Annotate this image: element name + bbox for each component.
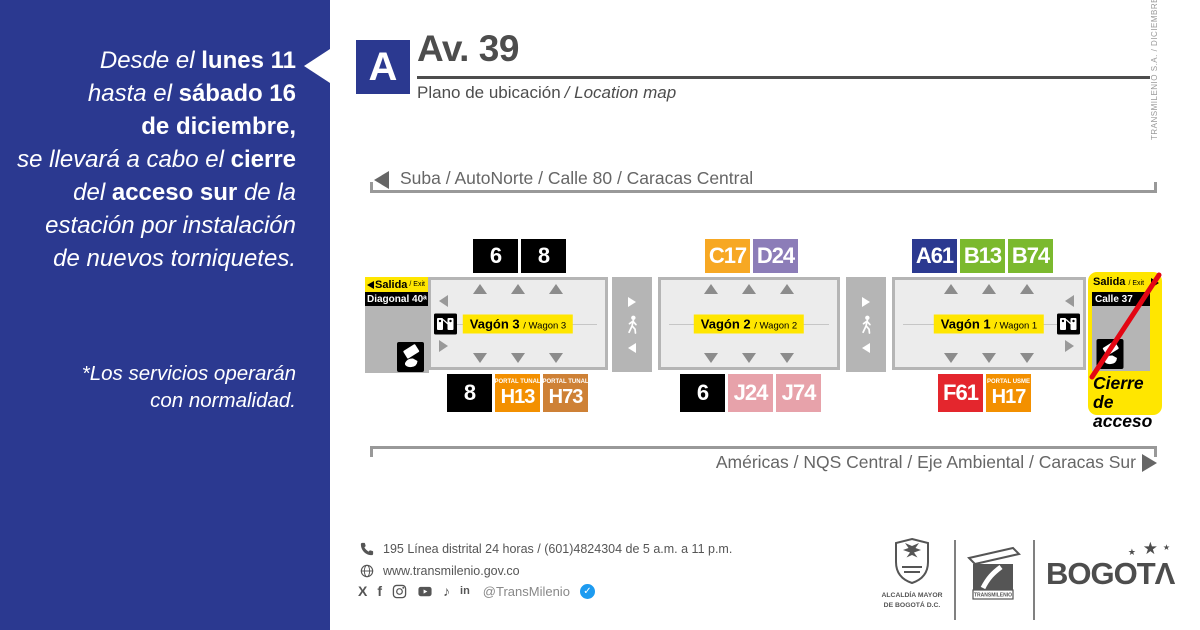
- turnstile-icon: [434, 313, 457, 334]
- sidebar-message-line: de diciembre,: [0, 110, 296, 143]
- x-icon: X: [358, 584, 367, 599]
- footer-phone-row: 195 Línea distrital 24 horas / (601)4824…: [360, 542, 732, 556]
- arrow-up-icon: [780, 284, 794, 294]
- arrow-down-icon: [511, 353, 525, 363]
- bogota-logo: ★ ★ ★ BOGOTΛ: [1046, 556, 1176, 592]
- badge-label: B74: [1012, 245, 1049, 267]
- flow-right-icon: [439, 340, 448, 352]
- footer-website: www.transmilenio.gov.co: [383, 564, 520, 578]
- page-title: Av. 39: [417, 28, 519, 70]
- poster-canvas: Desde el lunes 11hasta el sábado 16de di…: [0, 0, 1200, 630]
- exit-left-salida-bar: Salida / Exit: [365, 277, 429, 292]
- wagon-3: Vagón 3 / Wagon 3: [428, 277, 608, 370]
- transmilenio-logo: TRANSMILENIO: [963, 544, 1025, 611]
- badge-label: H13: [501, 387, 535, 407]
- wagon-name-en: / Wagon 2: [754, 320, 797, 331]
- boarding-arrows-bottom: [895, 353, 1083, 363]
- message-segment: cierre: [231, 146, 296, 173]
- subtitle-es: Plano de ubicación: [417, 83, 561, 102]
- facebook-icon: f: [377, 584, 382, 599]
- roadway-line-top: [370, 190, 1157, 193]
- sidebar-message: Desde el lunes 11hasta el sábado 16de di…: [0, 44, 296, 275]
- direction-top-label: Suba / AutoNorte / Calle 80 / Caracas Ce…: [400, 168, 753, 189]
- wagon-2-top-routes: C17D24: [705, 239, 798, 273]
- route-badge-8: 8: [447, 374, 492, 412]
- footer-website-row: www.transmilenio.gov.co: [360, 564, 520, 578]
- phone-icon: [360, 542, 374, 556]
- message-segment: sábado 16: [179, 80, 296, 107]
- header-underline: [417, 76, 1150, 79]
- badge-portal-tag: PORTAL TUNAL: [542, 379, 588, 385]
- linkedin-icon: in: [460, 584, 470, 599]
- badge-label: 6: [490, 245, 501, 267]
- badge-label: 8: [464, 382, 475, 404]
- wagon-3-label: Vagón 3 / Wagon 3: [463, 314, 573, 333]
- flow-left-icon: [1065, 295, 1074, 307]
- direction-bottom: Américas / NQS Central / Eje Ambiental /…: [370, 452, 1157, 473]
- arrow-down-icon: [1020, 353, 1034, 363]
- wagon-name-en: / Wagon 1: [994, 320, 1037, 331]
- sidebar-footnote: *Los servicios operaráncon normalidad.: [0, 360, 296, 414]
- route-badge-H73: PORTAL TUNALH73: [543, 374, 588, 412]
- wagon-name-en: / Wagon 3: [523, 320, 566, 331]
- route-badge-A61: A61: [912, 239, 957, 273]
- message-segment: acceso sur: [112, 179, 237, 206]
- route-badge-8: 8: [521, 239, 566, 273]
- logo-divider: [1033, 540, 1035, 620]
- route-badge-D24: D24: [753, 239, 798, 273]
- route-badge-B74: B74: [1008, 239, 1053, 273]
- arrow-down-icon: [944, 353, 958, 363]
- wagon-name: Vagón 1: [941, 316, 991, 331]
- station-letter-badge: A: [356, 40, 410, 94]
- arrow-up-icon: [1020, 284, 1034, 294]
- wagon-name: Vagón 3: [470, 316, 520, 331]
- closed-exit-area: Salida / Exit Calle 37 Cierre deacceso: [1088, 272, 1162, 415]
- alcaldia-logo: ALCALDÍA MAYOR DE BOGOTÁ D.C.: [874, 537, 950, 610]
- transmilenio-logo-text: TRANSMILENIO: [974, 593, 1012, 599]
- badge-label: C17: [709, 245, 746, 267]
- footnote-line: *Los servicios operarán: [0, 360, 296, 387]
- arrow-up-icon: [511, 284, 525, 294]
- message-segment: estación por instalación: [45, 212, 296, 239]
- badge-label: B13: [964, 245, 1001, 267]
- arrow-down-icon: [742, 353, 756, 363]
- badge-label: H17: [992, 387, 1026, 407]
- wagon-1-label: Vagón 1 / Wagon 1: [934, 314, 1044, 333]
- footer-social-row: X f ♪ in @TransMilenio ✓: [358, 584, 595, 599]
- wagon-1-top-routes: A61B13B74: [912, 239, 1053, 273]
- card-validator-icon: [397, 342, 424, 372]
- message-segment: de la: [237, 179, 296, 206]
- flow-left-icon: [439, 295, 448, 307]
- turnstile-icon: [1057, 313, 1080, 334]
- message-segment: de diciembre,: [141, 113, 296, 140]
- youtube-icon: [417, 584, 433, 599]
- route-badge-B13: B13: [960, 239, 1005, 273]
- direction-bottom-label: Américas / NQS Central / Eje Ambiental /…: [716, 452, 1136, 473]
- sidebar-message-line: estación por instalación: [0, 209, 296, 242]
- social-handle: @TransMilenio: [483, 584, 570, 599]
- bogota-wordmark: BOGOTΛ: [1046, 556, 1174, 591]
- route-badge-6: 6: [680, 374, 725, 412]
- transmilenio-logo-icon: TRANSMILENIO: [965, 544, 1023, 606]
- badge-label: A61: [916, 245, 953, 267]
- message-segment: lunes 11: [201, 47, 296, 74]
- exit-left-arrow-icon: [367, 281, 374, 289]
- roadway-line-bottom: [370, 446, 1157, 449]
- arrow-down-icon: [549, 353, 563, 363]
- arrow-up-icon: [549, 284, 563, 294]
- wagon-2-bottom-routes: 6J24J74: [680, 374, 821, 412]
- badge-label: J74: [782, 382, 816, 404]
- boarding-arrows-top: [431, 284, 605, 294]
- arrow-up-icon: [742, 284, 756, 294]
- star-icon: ★: [1143, 539, 1158, 559]
- alcaldia-crest-icon: [891, 537, 933, 585]
- badge-portal-tag: PORTAL USME: [987, 379, 1030, 385]
- sidebar-message-line: Desde el lunes 11: [0, 44, 296, 77]
- instagram-icon: [392, 584, 407, 599]
- arrow-up-icon: [944, 284, 958, 294]
- header-subtitle: Plano de ubicación/ Location map: [417, 83, 676, 103]
- exit-left-exit: / Exit: [409, 281, 425, 288]
- alcaldia-text-2: DE BOGOTÁ D.C.: [874, 602, 950, 610]
- wagon-name: Vagón 2: [701, 316, 751, 331]
- wagon-3-top-routes: 68: [473, 239, 566, 273]
- alcaldia-text-1: ALCALDÍA MAYOR: [874, 592, 950, 600]
- arrow-down-icon: [780, 353, 794, 363]
- walk-right-icon: [628, 297, 636, 307]
- wagon-1-bottom-routes: F61PORTAL USMEH17: [938, 374, 1031, 412]
- closure-cross-icon: [1088, 272, 1162, 415]
- sidebar-message-line: de nuevos torniquetes.: [0, 242, 296, 275]
- route-badge-J74: J74: [776, 374, 821, 412]
- boarding-arrows-top: [895, 284, 1083, 294]
- badge-label: 6: [697, 382, 708, 404]
- route-badge-C17: C17: [705, 239, 750, 273]
- route-badge-H13: PORTAL TUNALH13: [495, 374, 540, 412]
- arrow-up-icon: [704, 284, 718, 294]
- message-segment: Desde el: [100, 47, 201, 74]
- message-segment: del: [73, 179, 112, 206]
- arrow-up-icon: [473, 284, 487, 294]
- arrow-down-icon: [704, 353, 718, 363]
- sidebar-message-line: se llevará a cabo el cierre: [0, 143, 296, 176]
- message-segment: hasta el: [88, 80, 179, 107]
- pedestrian-icon: [858, 314, 875, 336]
- verified-badge-icon: ✓: [580, 584, 595, 599]
- arrow-down-icon: [982, 353, 996, 363]
- credit-vertical-text: TRANSMILENIO S.A. / DICIEMBRE - 2023: [1150, 25, 1159, 140]
- walk-left-icon: [628, 343, 636, 353]
- badge-label: 8: [538, 245, 549, 267]
- sidebar-message-line: hasta el sábado 16: [0, 77, 296, 110]
- direction-left-arrow-icon: [374, 171, 389, 189]
- passage-walkway: [846, 277, 886, 372]
- arrow-up-icon: [982, 284, 996, 294]
- bogota-accent: Λ: [1155, 556, 1175, 591]
- badge-label: H73: [549, 387, 583, 407]
- flow-right-icon: [1065, 340, 1074, 352]
- exit-left-area: Salida / Exit Diagonal 40ᵃ: [365, 277, 429, 373]
- footer-phone: 195 Línea distrital 24 horas / (601)4824…: [383, 542, 732, 556]
- badge-label: J24: [734, 382, 768, 404]
- exit-left-street: Diagonal 40ᵃ: [365, 292, 429, 306]
- passage-walkway: [612, 277, 652, 372]
- badge-label: D24: [757, 245, 794, 267]
- boarding-arrows-bottom: [431, 353, 605, 363]
- route-badge-F61: F61: [938, 374, 983, 412]
- subtitle-en: / Location map: [565, 83, 677, 102]
- wagon-2-label: Vagón 2 / Wagon 2: [694, 314, 804, 333]
- route-badge-H17: PORTAL USMEH17: [986, 374, 1031, 412]
- wagon-2: Vagón 2 / Wagon 2: [658, 277, 840, 370]
- route-badge-6: 6: [473, 239, 518, 273]
- walk-left-icon: [862, 343, 870, 353]
- wagon-3-bottom-routes: 8PORTAL TUNALH13PORTAL TUNALH73: [447, 374, 588, 412]
- walk-right-icon: [862, 297, 870, 307]
- wagon-1: Vagón 1 / Wagon 1: [892, 277, 1086, 370]
- boarding-arrows-top: [661, 284, 837, 294]
- tiktok-icon: ♪: [443, 584, 450, 599]
- bogota-prefix: BOGOT: [1046, 556, 1155, 591]
- sidebar-message-line: del acceso sur de la: [0, 176, 296, 209]
- station-letter: A: [369, 45, 398, 90]
- badge-portal-tag: PORTAL TUNAL: [494, 379, 540, 385]
- direction-right-arrow-icon: [1142, 454, 1157, 472]
- star-icon: ★: [1163, 543, 1170, 552]
- boarding-arrows-bottom: [661, 353, 837, 363]
- star-icon: ★: [1128, 547, 1136, 558]
- globe-icon: [360, 564, 374, 578]
- message-segment: de nuevos torniquetes.: [53, 245, 296, 272]
- sidebar-notch-arrow-icon: [304, 49, 330, 83]
- logo-divider: [954, 540, 956, 620]
- badge-label: F61: [943, 382, 978, 404]
- exit-left-salida: Salida: [375, 279, 407, 291]
- route-badge-J24: J24: [728, 374, 773, 412]
- arrow-down-icon: [473, 353, 487, 363]
- pedestrian-icon: [624, 314, 641, 336]
- footnote-line: con normalidad.: [0, 387, 296, 414]
- message-segment: se llevará a cabo el: [17, 146, 230, 173]
